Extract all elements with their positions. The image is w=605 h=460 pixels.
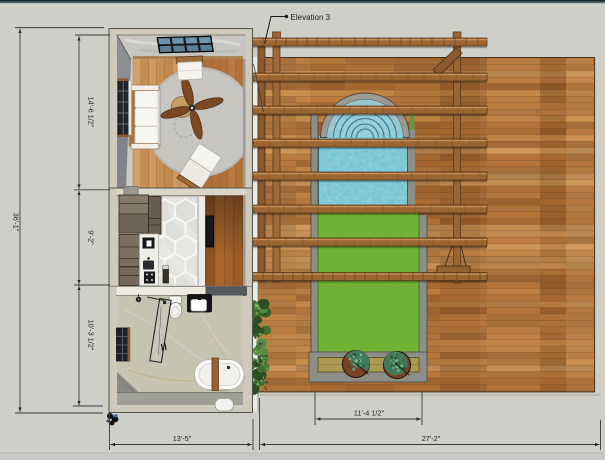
svg-text:27'-2": 27'-2" (422, 434, 441, 443)
svg-text:13'-5": 13'-5" (173, 434, 192, 443)
svg-text:11'-4 1/2": 11'-4 1/2" (354, 409, 385, 418)
svg-text:36'-1": 36'-1" (12, 213, 21, 232)
svg-text:9'-2": 9'-2" (87, 230, 96, 245)
svg-text:Elevation 3: Elevation 3 (291, 13, 331, 22)
svg-text:10'-3 1/2": 10'-3 1/2" (87, 320, 96, 351)
svg-text:14'-6 1/2": 14'-6 1/2" (87, 97, 96, 128)
